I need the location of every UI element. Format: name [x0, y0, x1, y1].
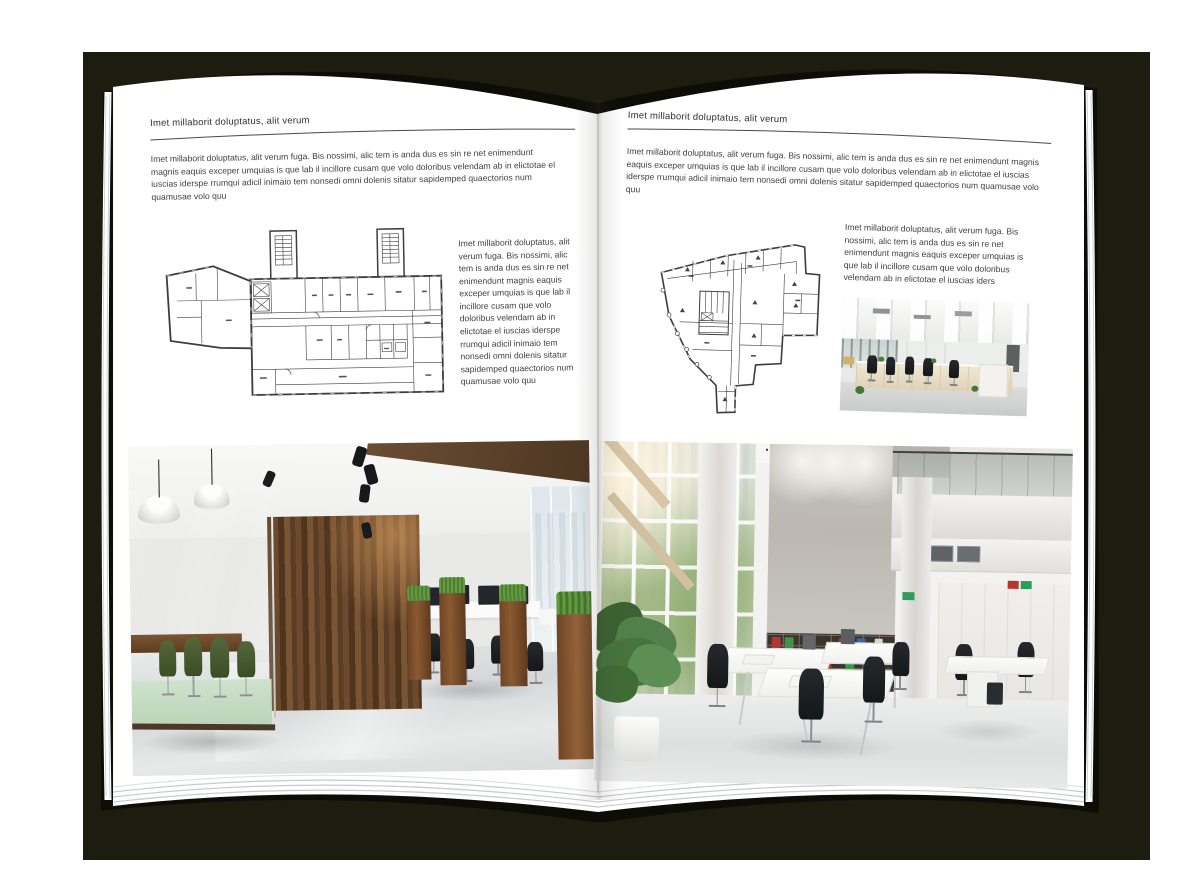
waste-bin	[986, 682, 1002, 704]
right-office-photo	[594, 441, 1073, 789]
pendant-lamp	[138, 496, 180, 527]
office-chair	[527, 642, 543, 672]
plant-pot	[614, 717, 660, 762]
green-chair	[210, 638, 229, 678]
air-vent	[929, 545, 953, 562]
concrete-wall	[767, 444, 898, 638]
exit-sign	[902, 592, 914, 600]
wood-planter	[439, 590, 466, 686]
ceiling	[842, 297, 1030, 345]
office-chair	[707, 643, 729, 688]
left-intro-paragraph: Imet millaborit doluptatus, alit verum f…	[151, 146, 560, 204]
green-chair	[237, 641, 255, 677]
office-chair	[949, 360, 959, 378]
monitor	[802, 635, 815, 649]
wood-planter	[557, 611, 594, 760]
green-chair	[184, 637, 203, 677]
floor-shadow	[408, 678, 537, 703]
office-chair	[863, 656, 886, 702]
right-side-text: Imet millaborit doluptatus, alit verum f…	[843, 221, 1037, 289]
monitor	[840, 629, 854, 645]
right-page-content: Imet millaborit doluptatus, alit verum I…	[620, 110, 1052, 430]
planter-grass	[499, 584, 527, 601]
right-side-column: Imet millaborit doluptatus, alit verum f…	[840, 219, 1039, 429]
left-plan-row: Imet millaborit doluptatus, alit verum f…	[152, 217, 580, 411]
left-floor-plan	[156, 220, 451, 411]
ceiling-light-grille	[914, 314, 931, 319]
floor-shadow	[727, 729, 898, 762]
ceiling-light-grille	[955, 311, 972, 316]
left-side-text: Imet millaborit doluptatus, alit verum f…	[458, 235, 577, 405]
office-chair	[904, 356, 914, 374]
office-chair	[867, 355, 877, 373]
right-intro-paragraph: Imet millaborit doluptatus, alit verum f…	[626, 145, 1047, 207]
office-chair	[886, 356, 896, 374]
cabinet-wall	[936, 583, 1070, 708]
ceiling-light-grille	[873, 308, 890, 313]
monitor	[478, 586, 499, 605]
safety-sign-red	[1007, 580, 1018, 589]
green-chair	[159, 640, 177, 676]
office-chair	[892, 641, 910, 675]
wood-planter	[499, 597, 528, 686]
planter-grass	[557, 591, 594, 615]
lounge-chair	[843, 356, 854, 364]
white-cabinet	[979, 364, 1008, 397]
right-plan-row: Imet millaborit doluptatus, alit verum f…	[620, 213, 1049, 429]
safety-sign-green	[1020, 581, 1031, 590]
left-page-content: Imet millaborit doluptatus, alit verum I…	[150, 110, 580, 411]
left-office-photo	[128, 440, 594, 776]
drawing-paper	[741, 654, 774, 665]
office-chair	[799, 669, 824, 720]
right-floor-plan	[634, 214, 835, 424]
wood-planter	[407, 597, 431, 680]
planter-grass	[439, 577, 465, 594]
meeting-room-floor	[131, 678, 272, 726]
floor-shadow	[936, 719, 1040, 745]
magazine-spread-mockup: Imet millaborit doluptatus, alit verum I…	[0, 0, 1200, 891]
floor-shadow	[141, 728, 280, 756]
track-spotlight	[358, 484, 370, 503]
planter-grass	[407, 586, 430, 601]
air-vent	[957, 546, 981, 563]
small-office-photo	[840, 297, 1031, 416]
